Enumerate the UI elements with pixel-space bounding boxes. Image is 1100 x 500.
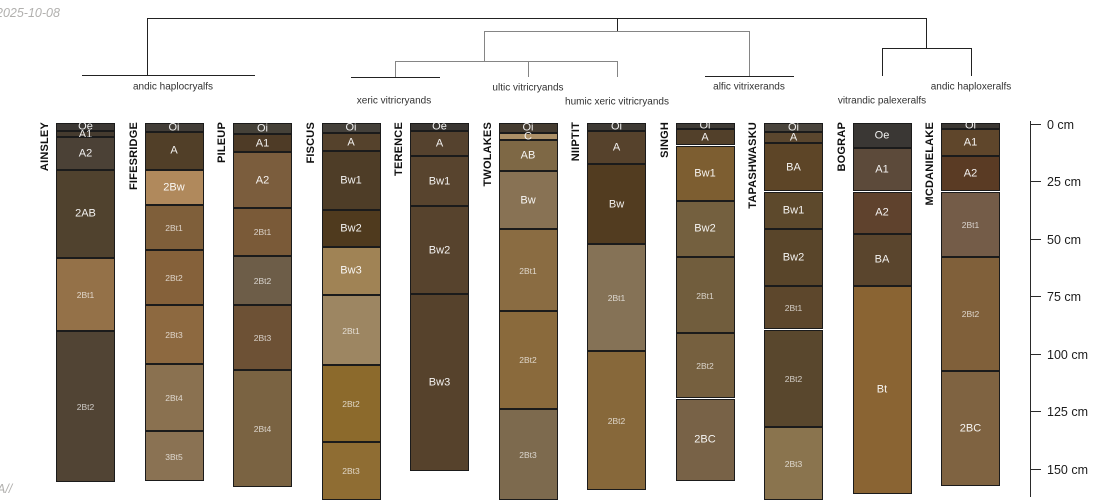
horizon-band	[853, 286, 912, 494]
cluster-label: alfic vitrixerands	[713, 82, 785, 93]
pedon-name-label: TERENCE	[393, 122, 405, 176]
horizon-band	[145, 305, 204, 364]
horizon-band	[410, 206, 469, 293]
horizon-band	[56, 258, 115, 330]
horizon-band	[941, 257, 1000, 371]
horizon-band	[322, 151, 381, 210]
depth-tick	[1030, 354, 1041, 355]
cluster-label: andic haplocryalfs	[133, 82, 213, 93]
pedon-name-label: TAPASHWASKU	[747, 122, 759, 209]
horizon-band	[233, 152, 292, 207]
dendrogram-vline	[484, 31, 485, 61]
horizon-band	[56, 170, 115, 259]
dendrogram-vline	[617, 61, 618, 77]
horizon-band	[764, 132, 823, 144]
horizon-band	[587, 131, 646, 164]
horizon-band	[233, 305, 292, 369]
depth-tick	[1030, 411, 1041, 412]
horizon-band	[499, 133, 558, 140]
pedon-name-label: BOGRAP	[836, 122, 848, 171]
horizon-band	[853, 123, 912, 148]
dendrogram-hline	[147, 18, 926, 19]
horizon-band	[233, 370, 292, 487]
pedon-name-label: FISCUS	[305, 122, 317, 164]
horizon-band	[56, 123, 115, 131]
cluster-label: humic xeric vitricryands	[565, 97, 669, 108]
horizon-band	[676, 333, 735, 399]
horizon-band	[410, 156, 469, 207]
horizon-band	[587, 164, 646, 245]
depth-tick	[1030, 239, 1041, 240]
cluster-label: ultic vitricryands	[492, 83, 563, 94]
horizon-band	[853, 234, 912, 286]
pedon-name-label: MCDANIELAKE	[924, 122, 936, 205]
horizon-band	[56, 131, 115, 138]
horizon-band	[676, 146, 735, 201]
horizon-band	[853, 192, 912, 235]
depth-tick	[1030, 296, 1041, 297]
horizon-band	[233, 256, 292, 305]
horizon-band	[410, 131, 469, 156]
soil-profile-plot: 2025-10-08 A// andic haplocryalfsxeric v…	[0, 0, 1100, 500]
horizon-band	[587, 351, 646, 490]
horizon-band	[499, 311, 558, 409]
horizon-band	[941, 123, 1000, 130]
horizon-band	[764, 143, 823, 191]
dendrogram-hline	[484, 31, 750, 32]
horizon-band	[764, 286, 823, 330]
horizon-band	[233, 134, 292, 152]
depth-tick	[1030, 469, 1041, 470]
horizon-band	[676, 129, 735, 145]
horizon-band	[499, 140, 558, 171]
horizon-band	[410, 294, 469, 471]
dendrogram-vline	[395, 61, 396, 77]
depth-tick-label: 150 cm	[1047, 463, 1088, 477]
dendrogram-hline	[395, 61, 617, 62]
horizon-band	[764, 123, 823, 132]
horizon-band	[145, 170, 204, 206]
pedon-name-label: FIFESRIDGE	[128, 122, 140, 190]
dendrogram-vline	[528, 61, 529, 77]
dendrogram-vline	[926, 18, 927, 48]
horizon-band	[676, 201, 735, 257]
horizon-band	[941, 129, 1000, 155]
horizon-band	[56, 331, 115, 483]
pedon-name-label: AINSLEY	[39, 122, 51, 171]
dendrogram-hline	[882, 48, 971, 49]
horizon-band	[676, 257, 735, 333]
horizon-band	[764, 229, 823, 285]
horizon-band	[499, 229, 558, 311]
horizon-band	[587, 123, 646, 131]
horizon-band	[322, 365, 381, 442]
cluster-label: andic haploxeralfs	[931, 82, 1012, 93]
pedon-name-label: TWOLAKES	[482, 122, 494, 187]
corner-annotation: A//	[0, 482, 12, 496]
horizon-band	[145, 205, 204, 250]
depth-tick-label: 75 cm	[1047, 290, 1081, 304]
horizon-band	[56, 137, 115, 169]
horizon-band	[145, 431, 204, 482]
horizon-band	[941, 371, 1000, 486]
dendrogram-vline	[749, 31, 750, 76]
horizon-band	[499, 171, 558, 230]
horizon-band	[764, 330, 823, 428]
dendrogram-vline	[147, 18, 148, 75]
depth-tick-label: 125 cm	[1047, 405, 1088, 419]
depth-axis-line	[1030, 121, 1031, 497]
depth-tick-label: 0 cm	[1047, 118, 1074, 132]
horizon-band	[941, 192, 1000, 258]
horizon-band	[764, 427, 823, 499]
depth-tick	[1030, 124, 1041, 125]
horizon-band	[764, 192, 823, 230]
depth-tick-label: 50 cm	[1047, 233, 1081, 247]
depth-tick	[1030, 181, 1041, 182]
horizon-band	[322, 133, 381, 151]
pedon-name-label: SINGH	[659, 122, 671, 158]
horizon-band	[676, 399, 735, 482]
horizon-band	[322, 442, 381, 500]
depth-tick-label: 25 cm	[1047, 175, 1081, 189]
horizon-band	[587, 244, 646, 351]
dendrogram-vline	[617, 18, 618, 31]
horizon-band	[145, 364, 204, 431]
horizon-band	[410, 123, 469, 131]
horizon-band	[145, 123, 204, 132]
horizon-band	[233, 208, 292, 256]
date-annotation: 2025-10-08	[0, 6, 60, 20]
dendrogram-vline	[882, 48, 883, 76]
dendrogram-hline	[705, 76, 794, 77]
horizon-band	[145, 132, 204, 170]
dendrogram-vline	[971, 48, 972, 76]
dendrogram-hline	[82, 75, 255, 76]
pedon-name-label: PILEUP	[216, 122, 228, 163]
depth-tick-label: 100 cm	[1047, 348, 1088, 362]
cluster-label: xeric vitricryands	[357, 96, 431, 107]
pedon-name-label: NIIPTIT	[570, 122, 582, 161]
horizon-band	[499, 409, 558, 500]
horizon-band	[322, 295, 381, 365]
horizon-band	[676, 123, 735, 130]
horizon-band	[853, 148, 912, 192]
horizon-band	[145, 250, 204, 305]
cluster-label: vitrandic palexeralfs	[838, 96, 926, 107]
horizon-band	[322, 123, 381, 133]
horizon-band	[322, 247, 381, 295]
horizon-band	[322, 210, 381, 247]
dendrogram-hline	[351, 77, 440, 78]
horizon-band	[941, 156, 1000, 192]
horizon-band	[499, 123, 558, 133]
horizon-band	[233, 123, 292, 135]
